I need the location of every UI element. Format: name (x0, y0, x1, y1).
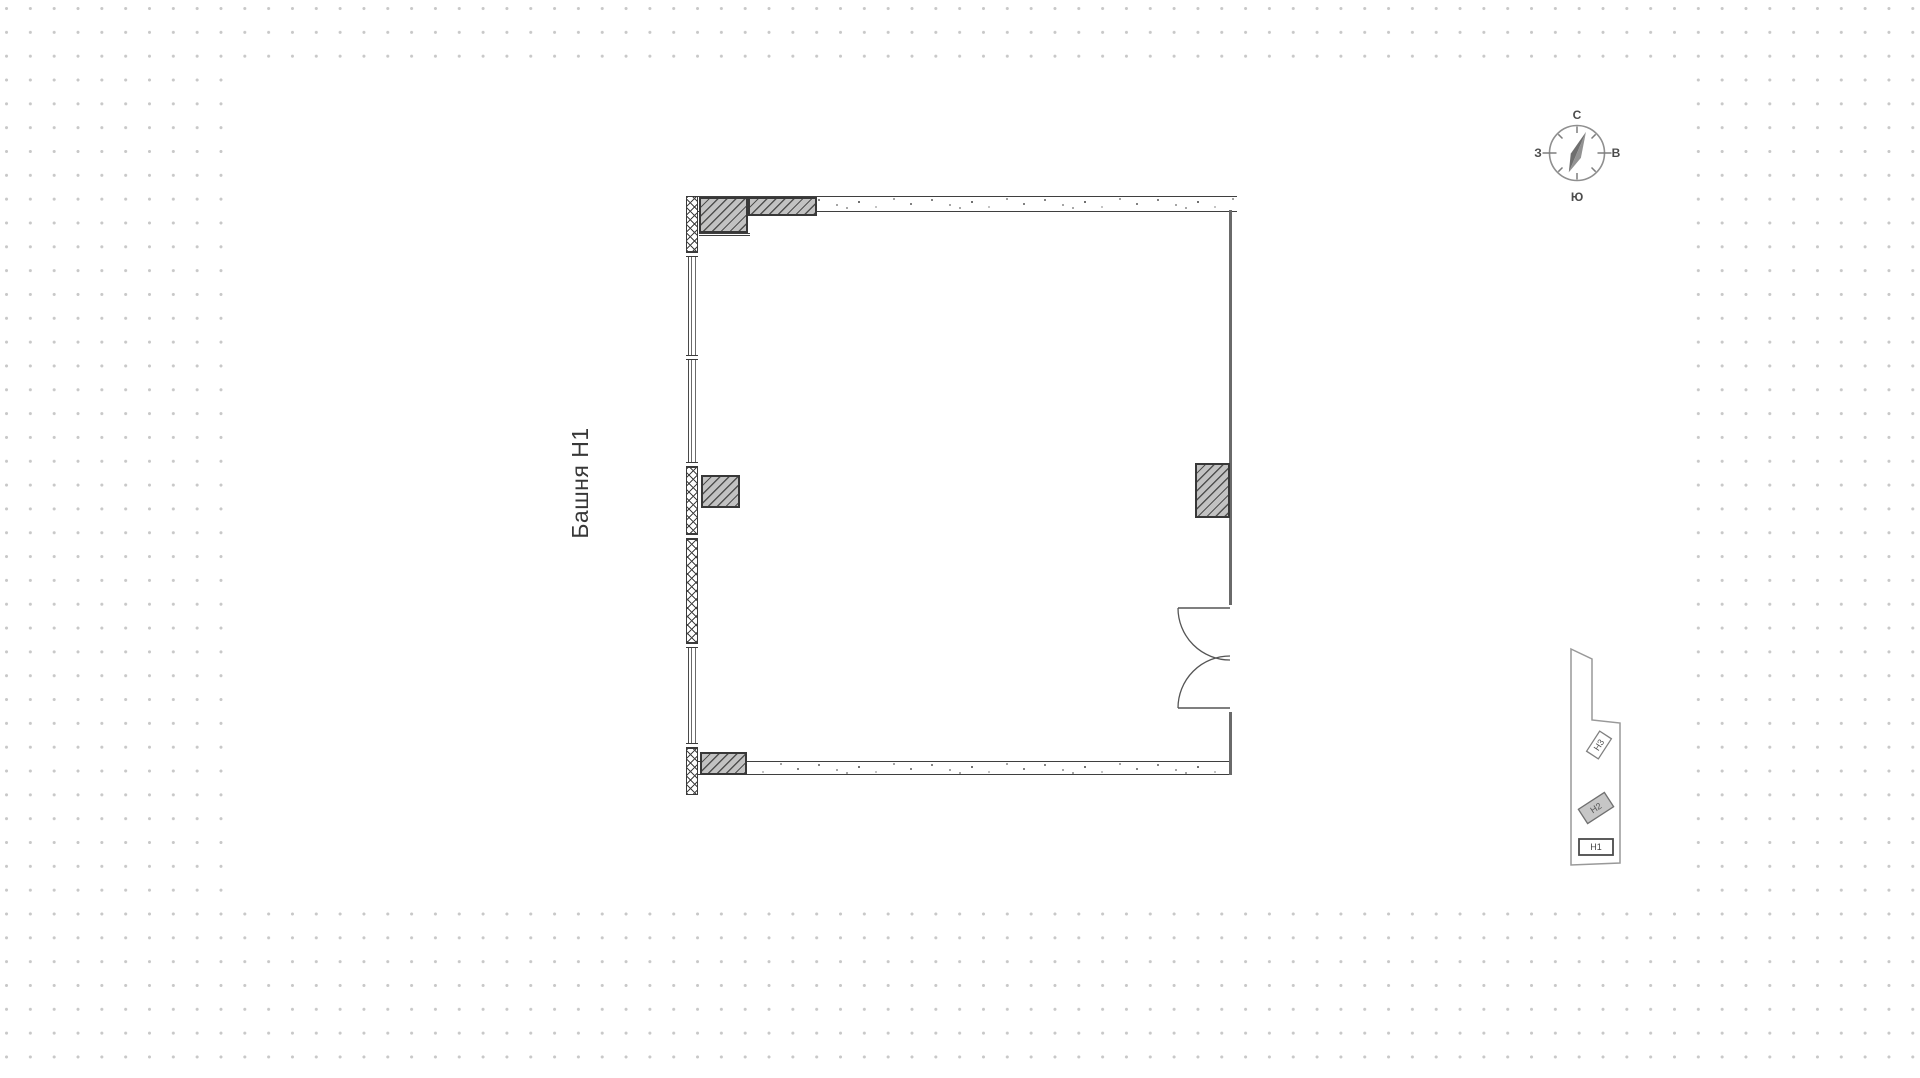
compass-label-north: С (1573, 108, 1582, 122)
column-top-left (699, 197, 748, 233)
floor-plan-room[interactable] (686, 196, 1237, 775)
door-swing-arc-top (1178, 608, 1230, 660)
glazing-line (691, 648, 696, 743)
dot-grid-background: Башня Н1 С Ю В З Н3 (0, 0, 1920, 1078)
wall-left-pier (686, 196, 698, 252)
column-top-left-extension (748, 197, 817, 216)
minimap-building-n1[interactable]: Н1 (1579, 839, 1613, 855)
wall-left-window (688, 360, 696, 462)
glazing-line (691, 360, 696, 462)
column-right-middle (1195, 463, 1230, 518)
wall-bottom (697, 761, 1232, 775)
minimap-building-n1-label: Н1 (1590, 842, 1602, 852)
door-double-swing (1160, 590, 1250, 730)
site-minimap: Н3 Н2 Н1 (1558, 643, 1634, 873)
compass-label-east: В (1612, 146, 1621, 160)
wall-left (686, 196, 698, 775)
column-bottom-left (700, 752, 747, 775)
compass-label-west: З (1534, 146, 1542, 160)
wall-left-window (688, 648, 696, 743)
wall-left-window (688, 257, 696, 355)
wall-left-pier (686, 467, 698, 534)
wall-left-pier (686, 748, 698, 795)
glazing-line (691, 257, 696, 355)
compass-rose: С Ю В З (1528, 98, 1628, 208)
column-top-left-sill (699, 233, 750, 236)
compass-label-south: Ю (1571, 190, 1583, 204)
wall-left-pier (686, 539, 698, 643)
wall-right-upper (1229, 210, 1232, 605)
tower-title: Башня Н1 (565, 403, 595, 563)
door-swing-arc-bottom (1178, 656, 1230, 708)
column-left-middle (701, 475, 740, 508)
compass-needle-icon (1564, 130, 1591, 175)
